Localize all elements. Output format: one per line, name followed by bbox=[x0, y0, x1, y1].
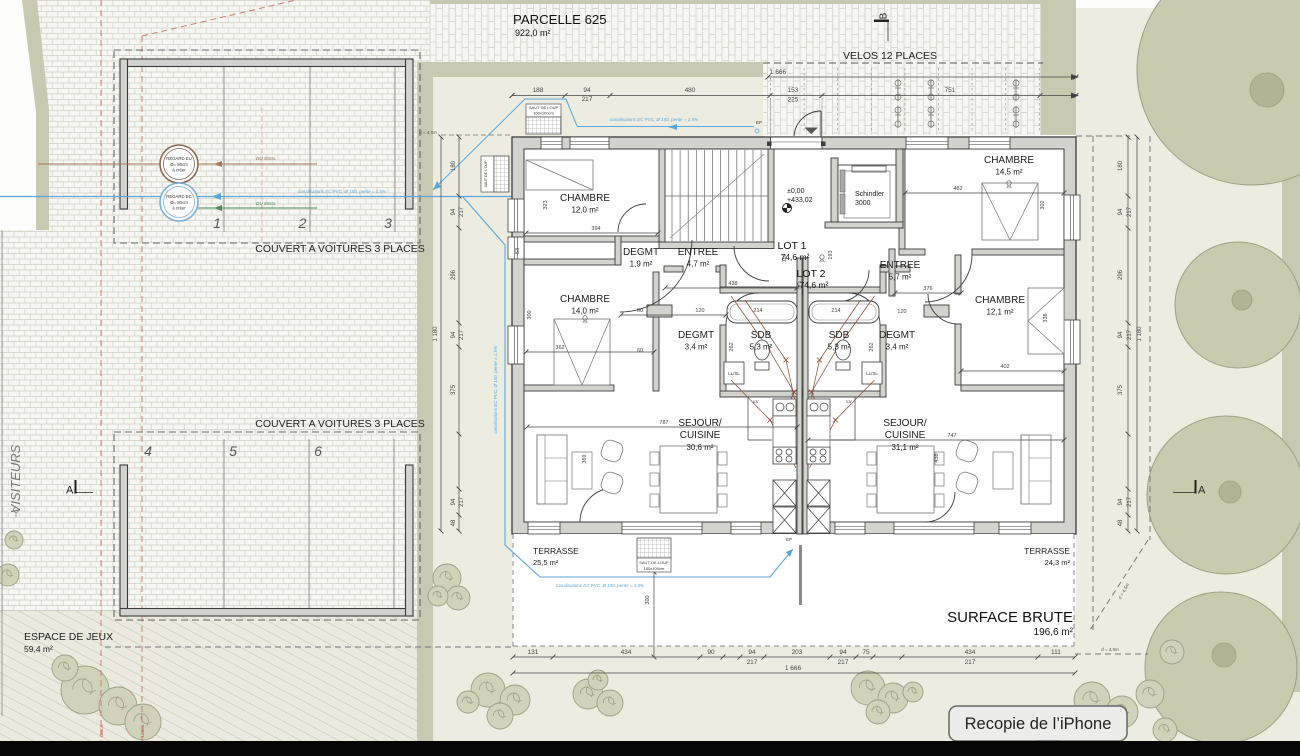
svg-text:EP: EP bbox=[786, 537, 792, 542]
svg-text:Limou: Limou bbox=[99, 724, 104, 737]
svg-text:1,9 m²: 1,9 m² bbox=[630, 260, 653, 269]
svg-text:PARCELLE 625: PARCELLE 625 bbox=[513, 12, 607, 27]
svg-text:1 180: 1 180 bbox=[1137, 326, 1143, 342]
svg-text:751: 751 bbox=[945, 87, 956, 94]
svg-text:110: 110 bbox=[782, 254, 788, 263]
svg-text:1: 1 bbox=[213, 215, 221, 231]
svg-text:TERRASSE: TERRASSE bbox=[1024, 546, 1070, 556]
svg-text:12,1 m²: 12,1 m² bbox=[986, 308, 1013, 317]
svg-text:LV: LV bbox=[753, 399, 758, 404]
svg-text:787: 787 bbox=[659, 420, 668, 426]
svg-text:94: 94 bbox=[451, 331, 457, 338]
svg-text:B: B bbox=[879, 12, 890, 19]
svg-text:48: 48 bbox=[451, 519, 457, 526]
svg-text:438: 438 bbox=[728, 281, 737, 287]
svg-text:Limou: Limou bbox=[140, 724, 145, 737]
svg-text:60: 60 bbox=[637, 348, 643, 354]
svg-text:94: 94 bbox=[1118, 208, 1124, 215]
svg-text:LL/SL: LL/SL bbox=[728, 371, 740, 376]
svg-text:1 180: 1 180 bbox=[433, 326, 439, 342]
svg-text:SURFACE BRUTE: SURFACE BRUTE bbox=[947, 609, 1073, 626]
svg-text:362: 362 bbox=[555, 345, 564, 351]
svg-text:438: 438 bbox=[934, 453, 940, 462]
svg-text:300: 300 bbox=[527, 310, 533, 319]
svg-text:111: 111 bbox=[1051, 649, 1061, 656]
svg-text:3000: 3000 bbox=[855, 200, 871, 207]
svg-text:4,7 m²: 4,7 m² bbox=[687, 260, 710, 269]
svg-text:217: 217 bbox=[1127, 329, 1133, 340]
svg-text:94: 94 bbox=[451, 208, 457, 215]
svg-text:Schindler: Schindler bbox=[855, 191, 885, 198]
svg-text:LL/SL: LL/SL bbox=[866, 371, 878, 376]
svg-text:196,6 m²: 196,6 m² bbox=[1034, 627, 1074, 638]
svg-text:94: 94 bbox=[583, 87, 591, 94]
svg-text:94: 94 bbox=[839, 649, 847, 656]
svg-text:48: 48 bbox=[1118, 519, 1124, 526]
svg-text:CUISINE: CUISINE bbox=[680, 430, 721, 441]
svg-text:302: 302 bbox=[1040, 200, 1046, 209]
svg-text:LV: LV bbox=[846, 399, 851, 404]
svg-text:30,6 m²: 30,6 m² bbox=[686, 443, 713, 452]
svg-text:DEGMT: DEGMT bbox=[623, 247, 659, 258]
svg-text:SEJOUR/: SEJOUR/ bbox=[883, 418, 927, 429]
svg-text:Recopie de l’iPhone: Recopie de l’iPhone bbox=[965, 715, 1112, 733]
svg-text:14,0 m²: 14,0 m² bbox=[571, 307, 598, 316]
svg-text:375: 375 bbox=[1118, 384, 1124, 395]
svg-text:180: 180 bbox=[1118, 160, 1124, 171]
svg-text:CHAMBRE: CHAMBRE bbox=[984, 155, 1034, 166]
svg-text:94: 94 bbox=[1118, 498, 1124, 505]
svg-text:100x100cm: 100x100cm bbox=[533, 111, 554, 116]
svg-text:3,4 m²: 3,4 m² bbox=[685, 343, 708, 352]
svg-text:1 666: 1 666 bbox=[770, 69, 787, 76]
svg-text:5,3 m²: 5,3 m² bbox=[828, 343, 851, 352]
svg-text:CHAMBRE: CHAMBRE bbox=[560, 294, 610, 305]
svg-text:63: 63 bbox=[515, 248, 521, 254]
svg-text:75: 75 bbox=[862, 649, 870, 656]
svg-text:+433,02: +433,02 bbox=[787, 197, 813, 204]
svg-text:90: 90 bbox=[707, 649, 715, 656]
svg-text:100x100cm: 100x100cm bbox=[644, 566, 665, 571]
svg-text:ENTREE: ENTREE bbox=[678, 247, 719, 258]
svg-text:296: 296 bbox=[1118, 269, 1124, 280]
svg-text:180: 180 bbox=[451, 160, 457, 171]
svg-text:canalisations EC PVC, Ø 150,: canalisations EC PVC, Ø 150, pente = 1,5… bbox=[556, 583, 644, 588]
svg-text:DEGMT: DEGMT bbox=[879, 330, 915, 341]
svg-text:CHAMBRE: CHAMBRE bbox=[560, 193, 610, 204]
svg-text:REGARD EC: REGARD EC bbox=[166, 194, 192, 199]
svg-text:94: 94 bbox=[451, 498, 457, 505]
svg-text:CHAMBRE: CHAMBRE bbox=[975, 295, 1025, 306]
svg-text:323: 323 bbox=[543, 200, 549, 209]
svg-text:VELOS 12 PLACES: VELOS 12 PLACES bbox=[843, 50, 937, 62]
svg-text:3,4 m²: 3,4 m² bbox=[886, 343, 909, 352]
svg-text:A: A bbox=[1198, 485, 1206, 497]
svg-text:482: 482 bbox=[953, 186, 962, 192]
svg-text:131: 131 bbox=[528, 649, 539, 656]
svg-text:153: 153 bbox=[788, 87, 799, 94]
svg-text:REGARD EU: REGARD EU bbox=[166, 156, 192, 161]
svg-text:217: 217 bbox=[1127, 496, 1133, 507]
svg-text:3: 3 bbox=[384, 215, 392, 231]
svg-text:EP: EP bbox=[756, 120, 762, 125]
svg-text:120: 120 bbox=[897, 309, 906, 315]
svg-text:217: 217 bbox=[459, 206, 465, 217]
svg-text:ENTREE: ENTREE bbox=[880, 260, 921, 271]
svg-text:262: 262 bbox=[729, 342, 735, 351]
svg-text:225: 225 bbox=[788, 97, 799, 104]
svg-text:300: 300 bbox=[645, 595, 651, 604]
svg-text:5,3 m²: 5,3 m² bbox=[750, 343, 773, 352]
svg-text:5: 5 bbox=[229, 443, 237, 459]
svg-text:canalisations EC PVC, Ø 150,: canalisations EC PVC, Ø 150, pente = 1,5… bbox=[493, 346, 498, 434]
svg-text:DU SSOL: DU SSOL bbox=[256, 156, 276, 161]
svg-text:d = 4,5m: d = 4,5m bbox=[419, 130, 437, 135]
svg-text:60: 60 bbox=[637, 308, 643, 314]
svg-text:203: 203 bbox=[792, 649, 803, 656]
svg-text:à créer: à créer bbox=[172, 206, 186, 211]
svg-text:394: 394 bbox=[591, 226, 600, 232]
svg-text:94: 94 bbox=[1118, 331, 1124, 338]
svg-text:214: 214 bbox=[831, 308, 840, 314]
svg-text:217: 217 bbox=[1127, 206, 1133, 217]
svg-text:LOT 2: LOT 2 bbox=[797, 268, 826, 280]
svg-text:2: 2 bbox=[298, 215, 307, 231]
svg-text:5,7 m²: 5,7 m² bbox=[889, 273, 912, 282]
svg-text:747: 747 bbox=[947, 433, 956, 439]
svg-text:25,5 m²: 25,5 m² bbox=[533, 558, 559, 567]
svg-text:296: 296 bbox=[451, 269, 457, 280]
svg-text:SAUT-DE-LOUP: SAUT-DE-LOUP bbox=[639, 560, 669, 565]
svg-text:6: 6 bbox=[314, 443, 322, 459]
svg-text:434: 434 bbox=[621, 649, 632, 656]
svg-text:74,6 m²: 74,6 m² bbox=[800, 280, 829, 290]
svg-text:ESPACE DE JEUX: ESPACE DE JEUX bbox=[24, 631, 113, 643]
svg-text:375: 375 bbox=[451, 384, 457, 395]
svg-text:COUVERT A VOITURES 3 PLACES: COUVERT A VOITURES 3 PLACES bbox=[255, 243, 424, 255]
svg-text:369: 369 bbox=[582, 454, 588, 463]
svg-text:VISITEURS: VISITEURS bbox=[8, 444, 23, 513]
svg-text:59,4 m²: 59,4 m² bbox=[24, 644, 53, 654]
svg-text:12,0 m²: 12,0 m² bbox=[571, 206, 598, 215]
svg-text:Ø= 80cm: Ø= 80cm bbox=[170, 162, 188, 167]
svg-text:Ø= 80cm: Ø= 80cm bbox=[170, 200, 188, 205]
svg-text:4: 4 bbox=[144, 443, 152, 459]
svg-text:480: 480 bbox=[685, 87, 696, 94]
svg-text:434: 434 bbox=[965, 649, 976, 656]
svg-text:376: 376 bbox=[923, 286, 932, 292]
svg-text:188: 188 bbox=[533, 87, 544, 94]
svg-text:CUISINE: CUISINE bbox=[885, 430, 926, 441]
svg-text:214: 214 bbox=[753, 308, 762, 314]
svg-text:217: 217 bbox=[747, 659, 758, 666]
svg-text:217: 217 bbox=[459, 496, 465, 507]
svg-text:d = 4,5m: d = 4,5m bbox=[1101, 647, 1119, 652]
svg-text:±0,00: ±0,00 bbox=[787, 188, 805, 195]
svg-text:canalisations EC PVC, Ø 150,: canalisations EC PVC, Ø 150, pente = 1,5… bbox=[298, 189, 386, 194]
svg-text:24,3 m²: 24,3 m² bbox=[1045, 558, 1071, 567]
svg-text:SDB: SDB bbox=[829, 330, 850, 341]
svg-text:1 666: 1 666 bbox=[785, 665, 802, 672]
svg-text:SDB: SDB bbox=[751, 330, 772, 341]
svg-text:262: 262 bbox=[869, 342, 875, 351]
svg-text:LOT 1: LOT 1 bbox=[778, 240, 807, 252]
svg-text:à créer: à créer bbox=[172, 168, 186, 173]
svg-text:217: 217 bbox=[582, 96, 593, 103]
svg-text:SAUT DE LOUP: SAUT DE LOUP bbox=[529, 105, 559, 110]
svg-text:TERRASSE: TERRASSE bbox=[533, 546, 579, 556]
svg-text:COUVERT A VOITURES 3 PLACES: COUVERT A VOITURES 3 PLACES bbox=[255, 418, 424, 430]
svg-text:canalisations EC PVC, Ø 150,: canalisations EC PVC, Ø 150, pente = 1,5… bbox=[610, 117, 698, 122]
svg-text:217: 217 bbox=[459, 329, 465, 340]
svg-text:402: 402 bbox=[1000, 364, 1009, 370]
svg-text:A: A bbox=[66, 485, 74, 497]
svg-text:31,1 m²: 31,1 m² bbox=[891, 443, 918, 452]
svg-text:217: 217 bbox=[965, 659, 976, 666]
svg-text:338: 338 bbox=[1043, 313, 1049, 322]
svg-text:DU SSOL: DU SSOL bbox=[256, 201, 276, 206]
svg-text:14,5 m²: 14,5 m² bbox=[995, 168, 1022, 177]
svg-text:922,0 m²: 922,0 m² bbox=[515, 28, 551, 38]
svg-text:SAUT DE L'OUP: SAUT DE L'OUP bbox=[484, 160, 488, 188]
svg-text:94: 94 bbox=[748, 649, 756, 656]
svg-text:193: 193 bbox=[828, 250, 834, 259]
svg-text:DEGMT: DEGMT bbox=[678, 330, 714, 341]
svg-text:120: 120 bbox=[695, 308, 704, 314]
svg-text:217: 217 bbox=[838, 659, 849, 666]
